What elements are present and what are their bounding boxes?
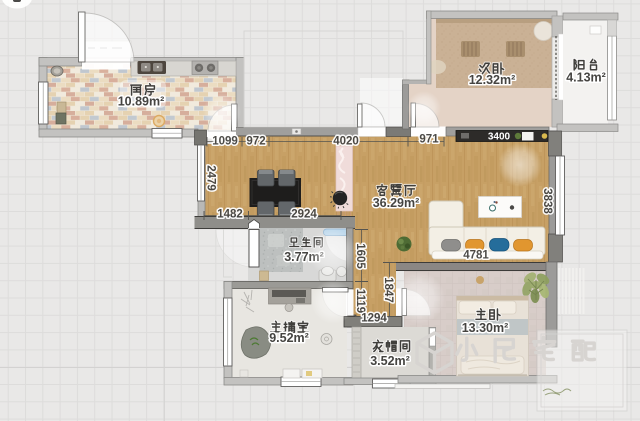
- svg-text:3.52m²: 3.52m²: [370, 354, 410, 368]
- svg-text:1482: 1482: [217, 209, 243, 221]
- svg-text:9.52m²: 9.52m²: [269, 331, 309, 345]
- svg-text:36.29m²: 36.29m²: [373, 196, 420, 210]
- svg-text:1605: 1605: [354, 243, 366, 269]
- svg-text:10.89m²: 10.89m²: [118, 95, 165, 109]
- svg-text:12.32m²: 12.32m²: [469, 73, 516, 87]
- svg-text:4020: 4020: [333, 136, 359, 148]
- svg-text:13.30m²: 13.30m²: [462, 321, 509, 335]
- svg-text:4781: 4781: [463, 250, 489, 262]
- svg-text:1099: 1099: [212, 136, 238, 148]
- svg-text:4.13m²: 4.13m²: [566, 71, 606, 85]
- svg-text:3838: 3838: [541, 188, 553, 214]
- svg-text:3400: 3400: [488, 132, 511, 143]
- svg-text:971: 971: [419, 134, 439, 146]
- svg-text:1119: 1119: [354, 289, 366, 313]
- svg-text:972: 972: [246, 136, 265, 148]
- svg-text:1847: 1847: [382, 277, 394, 303]
- svg-text:2479: 2479: [205, 165, 217, 191]
- svg-text:1294: 1294: [361, 313, 387, 325]
- svg-text:2924: 2924: [291, 209, 317, 221]
